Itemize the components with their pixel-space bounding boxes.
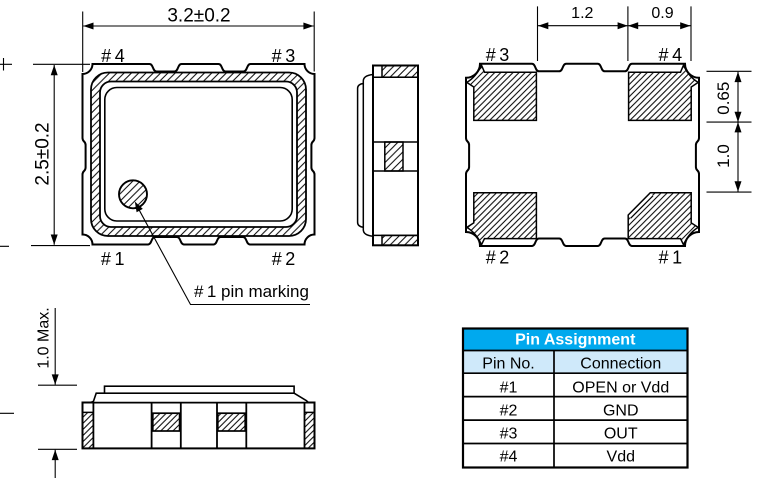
svg-text:# 1: # 1 — [101, 249, 125, 269]
svg-text:Vdd: Vdd — [607, 449, 635, 466]
svg-text:0.9: 0.9 — [651, 5, 673, 22]
svg-text:1.0: 1.0 — [714, 144, 733, 168]
svg-text:1.2: 1.2 — [571, 5, 593, 22]
svg-text:# 4: # 4 — [101, 46, 125, 66]
svg-text:# 2: # 2 — [272, 249, 296, 269]
svg-text:#4: #4 — [500, 449, 518, 466]
svg-text:# 4: # 4 — [658, 45, 682, 65]
svg-text:#3: #3 — [500, 426, 518, 443]
svg-text:Connection: Connection — [580, 355, 661, 372]
svg-text:1.0 Max.: 1.0 Max. — [36, 307, 53, 368]
svg-text:Pin No.: Pin No. — [482, 355, 534, 372]
svg-text:3.2±0.2: 3.2±0.2 — [167, 6, 230, 27]
svg-text:# 1: # 1 — [658, 248, 682, 268]
svg-text:# 1 pin marking: # 1 pin marking — [194, 282, 309, 301]
svg-text:OUT: OUT — [604, 426, 638, 443]
svg-text:Pin Assignment: Pin Assignment — [515, 332, 636, 349]
svg-text:0.65: 0.65 — [714, 82, 733, 115]
svg-text:#2: #2 — [500, 403, 518, 420]
svg-text:2.5±0.2: 2.5±0.2 — [33, 122, 54, 185]
svg-text:OPEN or Vdd: OPEN or Vdd — [572, 380, 669, 397]
svg-text:# 3: # 3 — [272, 46, 296, 66]
svg-text:# 3: # 3 — [486, 45, 510, 65]
svg-text:# 2: # 2 — [486, 248, 510, 268]
svg-text:GND: GND — [603, 403, 639, 420]
svg-text:#1: #1 — [500, 380, 518, 397]
